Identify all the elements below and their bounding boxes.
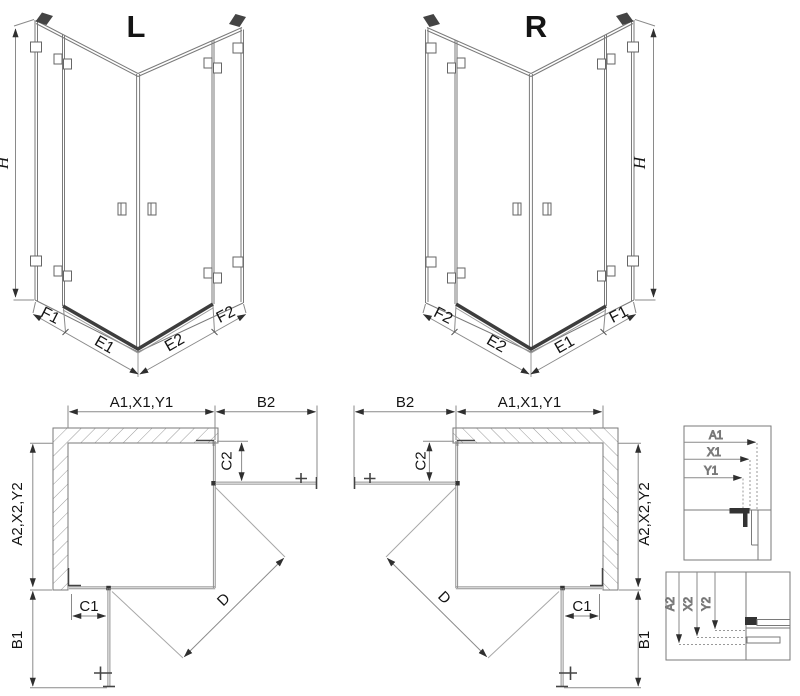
- detail-top-profile-lines: [752, 510, 759, 560]
- label-offset-bottom-left-plan: C1: [79, 598, 98, 615]
- detail-top-profile-dark-v: [743, 508, 748, 527]
- plan-view-left: A1,X1,Y1 B2 C2 A2,X2,Y2 C1 B1 D: [9, 394, 317, 688]
- iso-view-left: L H F1 E1 E2 F2: [0, 9, 246, 377]
- label-detail-y2: Y2: [701, 597, 713, 611]
- label-detail-y1: Y1: [704, 466, 718, 478]
- label-height-right: H: [630, 155, 649, 170]
- label-detail-a1: A1: [709, 430, 723, 442]
- plan-view-right: B2 A1,X1,Y1 C2 A2,X2,Y2 C1 B1 D: [354, 394, 653, 688]
- detail-bottom-profile-bar-2: [747, 637, 780, 643]
- detail-bottom-profile-dark: [745, 617, 757, 625]
- label-width-top-left-plan: A1,X1,Y1: [110, 394, 173, 411]
- label-door-top-left-plan: B2: [257, 394, 275, 411]
- label-detail-x2: X2: [683, 597, 695, 611]
- label-door-top-right-plan: B2: [396, 394, 414, 411]
- label-door-bottom-right-plan: B1: [636, 631, 653, 649]
- iso-view-right: R H F2 E2 E1 F1: [423, 9, 656, 377]
- label-e2-left: E2: [162, 331, 188, 356]
- label-offset-bottom-right-plan: C1: [572, 598, 591, 615]
- detail-box-top: A1 X1 Y1: [684, 426, 771, 560]
- technical-drawing-page: L H F1 E1 E2 F2 R H F2 E2 E1 F1 A1,X1,Y1…: [0, 0, 800, 696]
- label-variant-right: R: [525, 9, 547, 44]
- detail-box-bottom-border: [666, 572, 790, 660]
- label-variant-left: L: [127, 9, 146, 44]
- label-f1-left: F1: [38, 304, 62, 328]
- detail-bottom-dashed-lines: [679, 631, 746, 645]
- label-width-top-right-plan: A1,X1,Y1: [498, 394, 561, 411]
- label-diagonal-left-plan: D: [214, 590, 234, 610]
- detail-top-dashed-lines: [743, 443, 757, 510]
- drawing-canvas: L H F1 E1 E2 F2 R H F2 E2 E1 F1 A1,X1,Y1…: [0, 0, 800, 696]
- label-detail-x1: X1: [707, 447, 721, 459]
- label-detail-a2: A2: [665, 597, 677, 611]
- label-depth-right-plan: A2,X2,Y2: [636, 482, 653, 545]
- label-depth-left-plan: A2,X2,Y2: [9, 482, 26, 545]
- label-f1-right: F1: [607, 303, 631, 327]
- label-height-left: H: [0, 155, 12, 170]
- label-offset-top-left-plan: C2: [219, 451, 236, 470]
- label-offset-top-right-plan: C2: [413, 451, 430, 470]
- detail-bottom-profile-bar-1: [757, 620, 790, 626]
- label-f2-right: F2: [431, 304, 455, 328]
- label-diagonal-right-plan: D: [434, 588, 454, 608]
- detail-box-bottom: A2 X2 Y2: [665, 572, 790, 660]
- label-door-bottom-left-plan: B1: [9, 631, 26, 649]
